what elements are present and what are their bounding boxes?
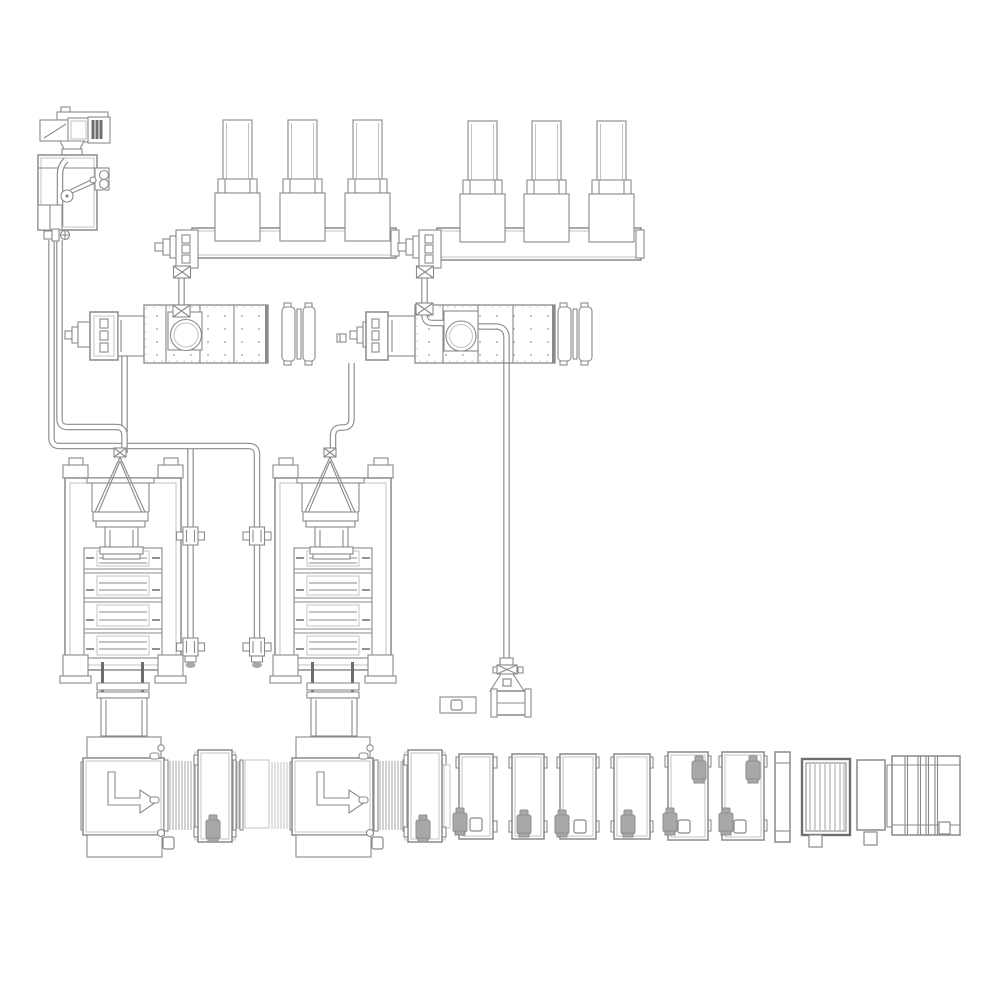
drying-hopper bbox=[460, 121, 505, 242]
drying-hopper bbox=[345, 120, 390, 241]
exhaust-collector bbox=[477, 327, 507, 661]
roll-stand-2 bbox=[509, 754, 547, 839]
roll-stand-4 bbox=[611, 754, 653, 839]
roll-stand-6 bbox=[719, 752, 767, 840]
junction-box bbox=[337, 334, 346, 342]
interfloor-duct-2 bbox=[233, 760, 296, 832]
rail-feeder-1 bbox=[155, 230, 198, 278]
hopper-bank-1 bbox=[155, 120, 399, 278]
chiller-dosing-unit bbox=[38, 107, 110, 241]
drying-hopper bbox=[215, 120, 260, 241]
dryer-end-filters bbox=[558, 303, 592, 365]
spinning-tower-1 bbox=[60, 448, 186, 736]
motor-fins bbox=[88, 117, 110, 143]
godet-cabinet-2 bbox=[404, 750, 450, 842]
winder-2 bbox=[887, 756, 960, 835]
hopper-bank-2 bbox=[398, 121, 644, 278]
blower-1 bbox=[168, 312, 202, 351]
crystallizer-dryer-2 bbox=[350, 303, 592, 365]
drying-hopper bbox=[524, 121, 569, 242]
roll-stand-5 bbox=[663, 752, 711, 840]
crystallizer-dryer-1 bbox=[65, 303, 315, 365]
spinning-tower-2 bbox=[270, 448, 396, 736]
roll-stand-1 bbox=[453, 754, 497, 839]
plant-layout-drawing: Synthetic fiber spinning plant — equipme… bbox=[0, 0, 1000, 1000]
exhaust-collector-drum bbox=[490, 658, 531, 717]
drying-hopper bbox=[589, 121, 634, 242]
floor-junction-box bbox=[440, 697, 476, 713]
control-panel bbox=[775, 752, 790, 842]
dryer-end-filters bbox=[282, 303, 315, 365]
blower-2 bbox=[444, 311, 478, 351]
godet-cabinet-1 bbox=[194, 750, 236, 842]
quench-cabinet-2 bbox=[290, 737, 383, 857]
interfloor-duct-1 bbox=[164, 760, 199, 831]
roll-stand-3 bbox=[555, 754, 599, 839]
rail-feeder-2 bbox=[398, 230, 441, 278]
winder-1 bbox=[802, 759, 850, 847]
quench-cabinet-1 bbox=[81, 737, 174, 857]
drying-hopper bbox=[280, 120, 325, 241]
interfloor-duct-3 bbox=[374, 760, 407, 831]
buffer-box bbox=[857, 760, 885, 845]
